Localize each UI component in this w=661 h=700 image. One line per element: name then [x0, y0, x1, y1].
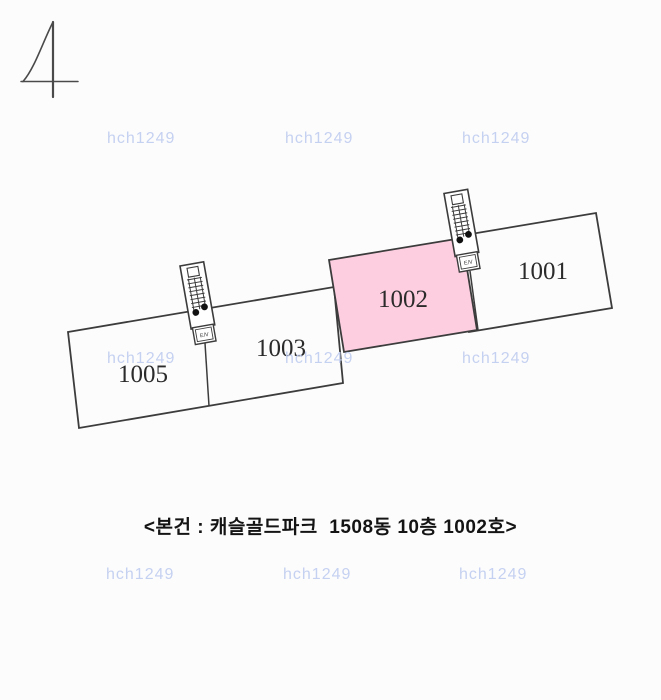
unit-label-1001: 1001: [518, 258, 568, 285]
watermark-text: hch1249: [283, 566, 351, 584]
unit-label-1002-highlighted: 1002: [378, 286, 428, 313]
watermark-text: hch1249: [462, 130, 530, 148]
watermark-text: hch1249: [106, 566, 174, 584]
watermark-text: hch1249: [459, 566, 527, 584]
stair-elevator-shaft-left: [180, 262, 218, 345]
numeral-4-sketch: [21, 22, 78, 97]
watermark-text: hch1249: [285, 130, 353, 148]
watermark-text: hch1249: [462, 350, 530, 368]
subject-property-caption: <본건 : 캐슬골드파크 1508동 10층 1002호>: [0, 512, 661, 539]
watermark-text: hch1249: [107, 350, 175, 368]
divider-1005-1003: [205, 343, 209, 406]
watermark-text: hch1249: [285, 350, 353, 368]
watermark-text: hch1249: [107, 130, 175, 148]
appraisal-floor-plan-page: E/V 1001 1002 1003 1005 hch1249 hch1249 …: [0, 0, 661, 700]
